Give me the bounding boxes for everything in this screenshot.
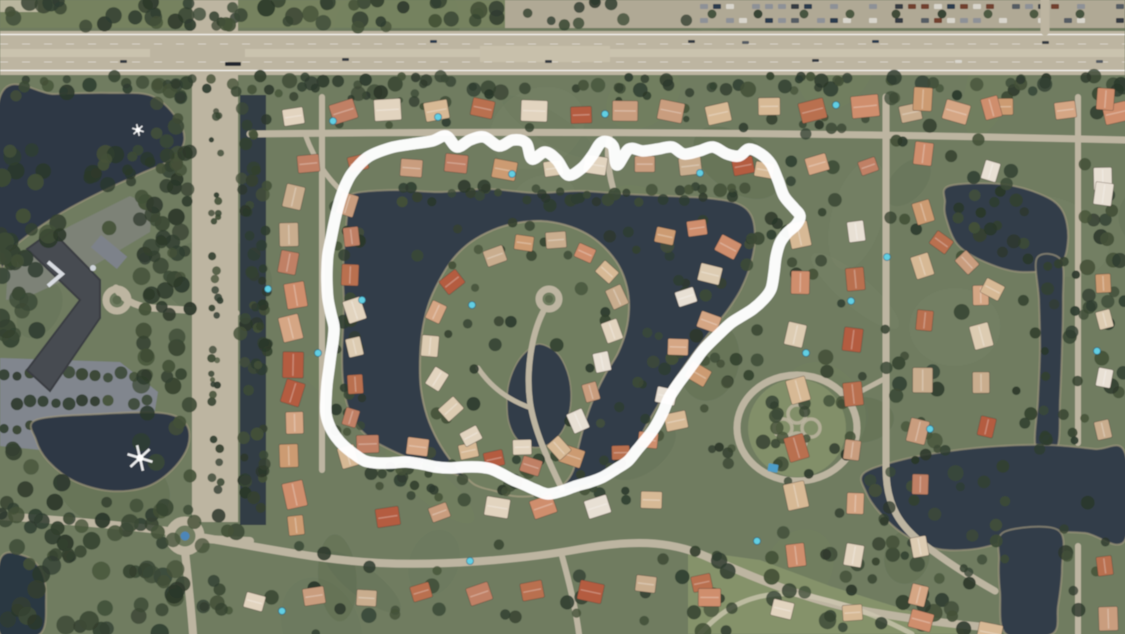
satellite-map-screenshot <box>0 0 1125 634</box>
aerial-imagery <box>0 0 1125 634</box>
